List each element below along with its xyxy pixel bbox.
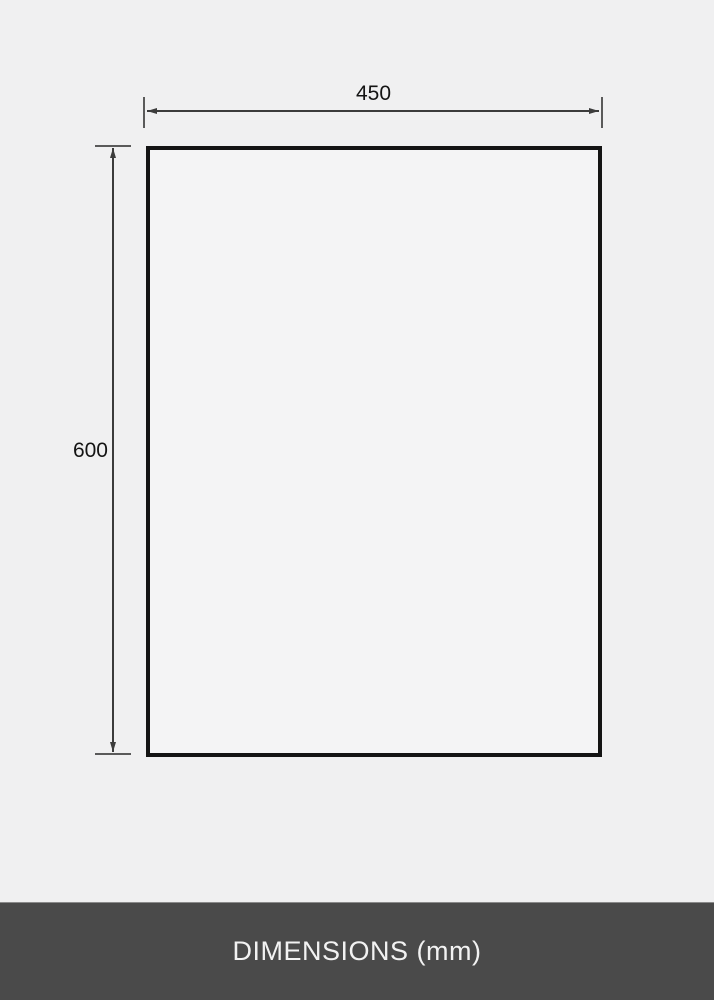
arrow-up-icon [110, 148, 116, 158]
product-dimension-diagram: 450 600 DIMENSIONS (mm) [0, 0, 714, 1000]
width-dim-left-extension-tick [143, 97, 145, 128]
width-dimension-line [147, 110, 599, 112]
product-outline-rectangle [146, 146, 602, 757]
height-dimension-label: 600 [30, 440, 108, 462]
arrow-right-icon [589, 108, 599, 114]
width-dimension-label: 450 [146, 83, 601, 105]
height-dimension-line [112, 148, 114, 752]
height-dim-bottom-extension-tick [95, 753, 131, 755]
arrow-down-icon [110, 742, 116, 752]
footer-title: DIMENSIONS (mm) [233, 936, 482, 967]
arrow-left-icon [147, 108, 157, 114]
footer-bar: DIMENSIONS (mm) [0, 902, 714, 1000]
height-dim-top-extension-tick [95, 145, 131, 147]
width-dim-right-extension-tick [601, 97, 603, 128]
